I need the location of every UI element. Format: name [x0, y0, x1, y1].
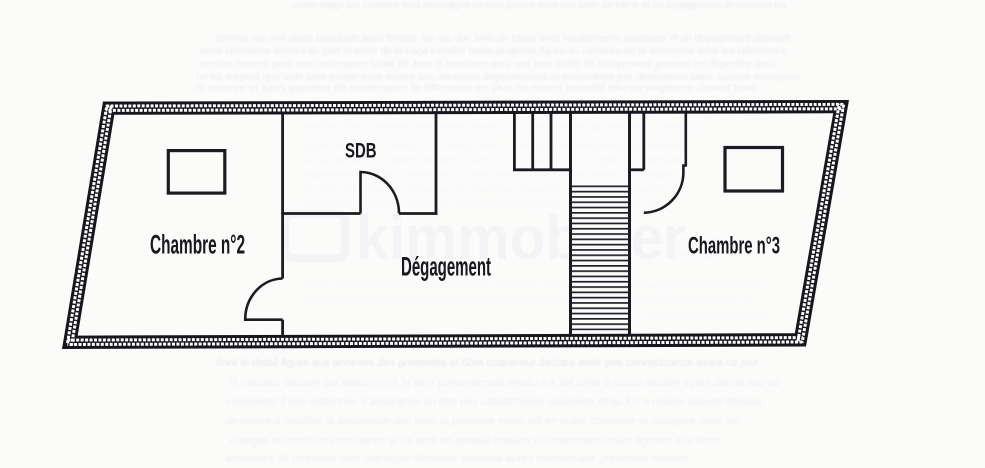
svg-text:le vendeur declare par ailleur: le vendeur declare par ailleurs que le b…: [230, 377, 780, 389]
svg-text:comme suit une piece principal: comme suit une piece principale avec fen…: [215, 33, 790, 44]
svg-text:anterieurs de propriete dont u: anterieurs de propriete dont une copie d…: [225, 453, 690, 465]
svg-text:presentes lesquels ne: presentes lesquels ne: [650, 294, 752, 306]
svg-text:Chambre n°2: Chambre n°2: [150, 230, 245, 260]
svg-text:vendeur et annexes aux: vendeur et annexes aux: [650, 279, 763, 291]
svg-text:premisse des presentes demeure: premisse des presentes demeurera annexe …: [300, 121, 703, 133]
svg-text:charges et conditions ordinair: charges et conditions ordinaires et de d…: [230, 435, 720, 447]
svg-text:ernier etage les combles sont: ernier etage les combles sont amenages e…: [292, 0, 787, 11]
svg-text:de nature a modifier la destin: de nature a modifier la destination des …: [225, 415, 740, 427]
svg-text:Dégagement: Dégagement: [401, 252, 491, 282]
svg-text:versement d une indemnite d as: versement d une indemnite d assurance au…: [225, 396, 762, 408]
svg-text:deux chambres situees de part: deux chambres situees de part et autre d…: [200, 46, 786, 57]
svg-text:departemental et des servitude: departemental et des servitudes pouvant …: [300, 169, 671, 181]
svg-text:section numero pour une conten: section numero pour une contenance total…: [200, 59, 775, 70]
svg-text:revelent aucune anomalie: revelent aucune anomalie: [650, 309, 770, 321]
svg-text:tel au surplus que ledit bien: tel au surplus que ledit bien existe ave…: [196, 72, 800, 83]
svg-text:Chambre n°3: Chambre n°3: [688, 233, 780, 260]
svg-text:ni reserve et sans garantie de: ni reserve et sans garantie de contenanc…: [196, 83, 756, 94]
svg-text:SDB: SDB: [345, 140, 377, 163]
svg-text:dont le detail figure aux anne: dont le detail figure aux annexes des pr…: [216, 357, 759, 369]
